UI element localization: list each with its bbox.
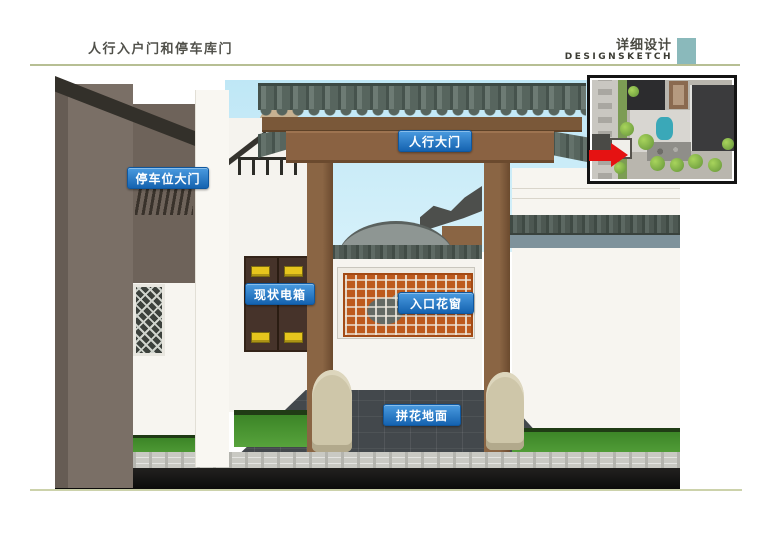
parking-garage-wall [55, 84, 133, 488]
plan-tree-icon [620, 122, 634, 136]
warning-sticker-icon [251, 332, 270, 343]
right-wall-fascia [510, 235, 680, 248]
footer-rule [30, 489, 742, 491]
teal-accent-square [677, 38, 696, 64]
garage-door-louvers [135, 188, 193, 215]
plan-pond [656, 117, 673, 140]
right-wall-tile-coping [510, 215, 680, 235]
label-entry-lattice-window: 入口花窗 [398, 292, 474, 314]
plan-tree-icon [628, 86, 639, 97]
label-paving: 拼花地面 [383, 404, 461, 426]
drum-stone-right [486, 372, 524, 450]
page-title: 人行入户门和停车库门 [88, 38, 233, 57]
gate-roof-tiles [258, 83, 586, 110]
site-plan-inset [587, 75, 737, 184]
wall-lattice-window [133, 284, 165, 356]
warning-sticker-icon [284, 266, 303, 277]
design-sketch-slide: 人行入户门和停车库门 详细设计 DESIGNSKETCH [0, 0, 782, 533]
right-wall [512, 248, 680, 430]
location-arrow-icon [611, 143, 628, 167]
asphalt-road [55, 468, 680, 490]
subtitle-en: DESIGNSKETCH [565, 52, 673, 62]
label-parking-gate: 停车位大门 [127, 167, 209, 189]
warning-sticker-icon [284, 332, 303, 343]
plan-tree-icon [708, 158, 722, 172]
plan-tree-icon [638, 134, 654, 150]
plan-pavilion [669, 81, 688, 109]
label-electric-box: 现状电箱 [245, 283, 315, 305]
right-wall-molding [512, 188, 680, 199]
location-arrow-icon [589, 150, 611, 161]
grass-strip-inner-left [234, 410, 310, 447]
plan-tree-icon [688, 154, 703, 169]
foreground-white-pillar [195, 90, 229, 467]
drum-stone-left [312, 370, 352, 452]
plan-tree-icon [722, 138, 734, 150]
header-rule [30, 64, 740, 66]
plan-tree-icon [670, 158, 684, 172]
subtitle-cn: 详细设计 [616, 34, 672, 53]
plan-tree-icon [650, 156, 665, 171]
label-pedestrian-gate: 人行大门 [398, 130, 472, 152]
warning-sticker-icon [251, 266, 270, 277]
